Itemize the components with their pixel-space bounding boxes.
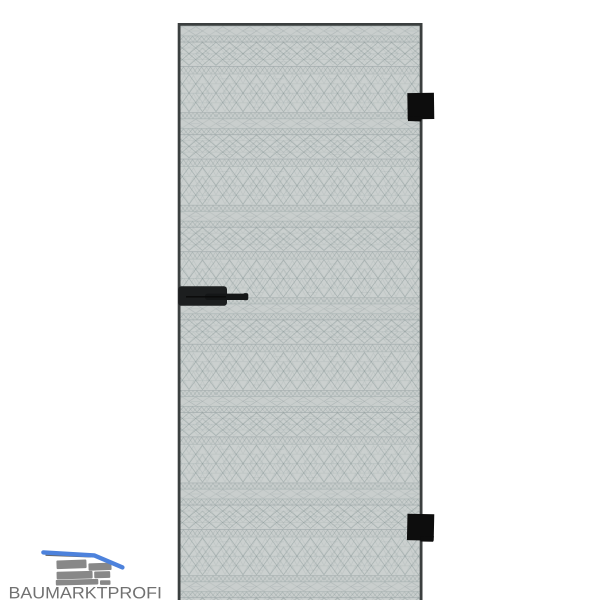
svg-text:BAUMARKTPROFI: BAUMARKTPROFI xyxy=(8,584,162,600)
